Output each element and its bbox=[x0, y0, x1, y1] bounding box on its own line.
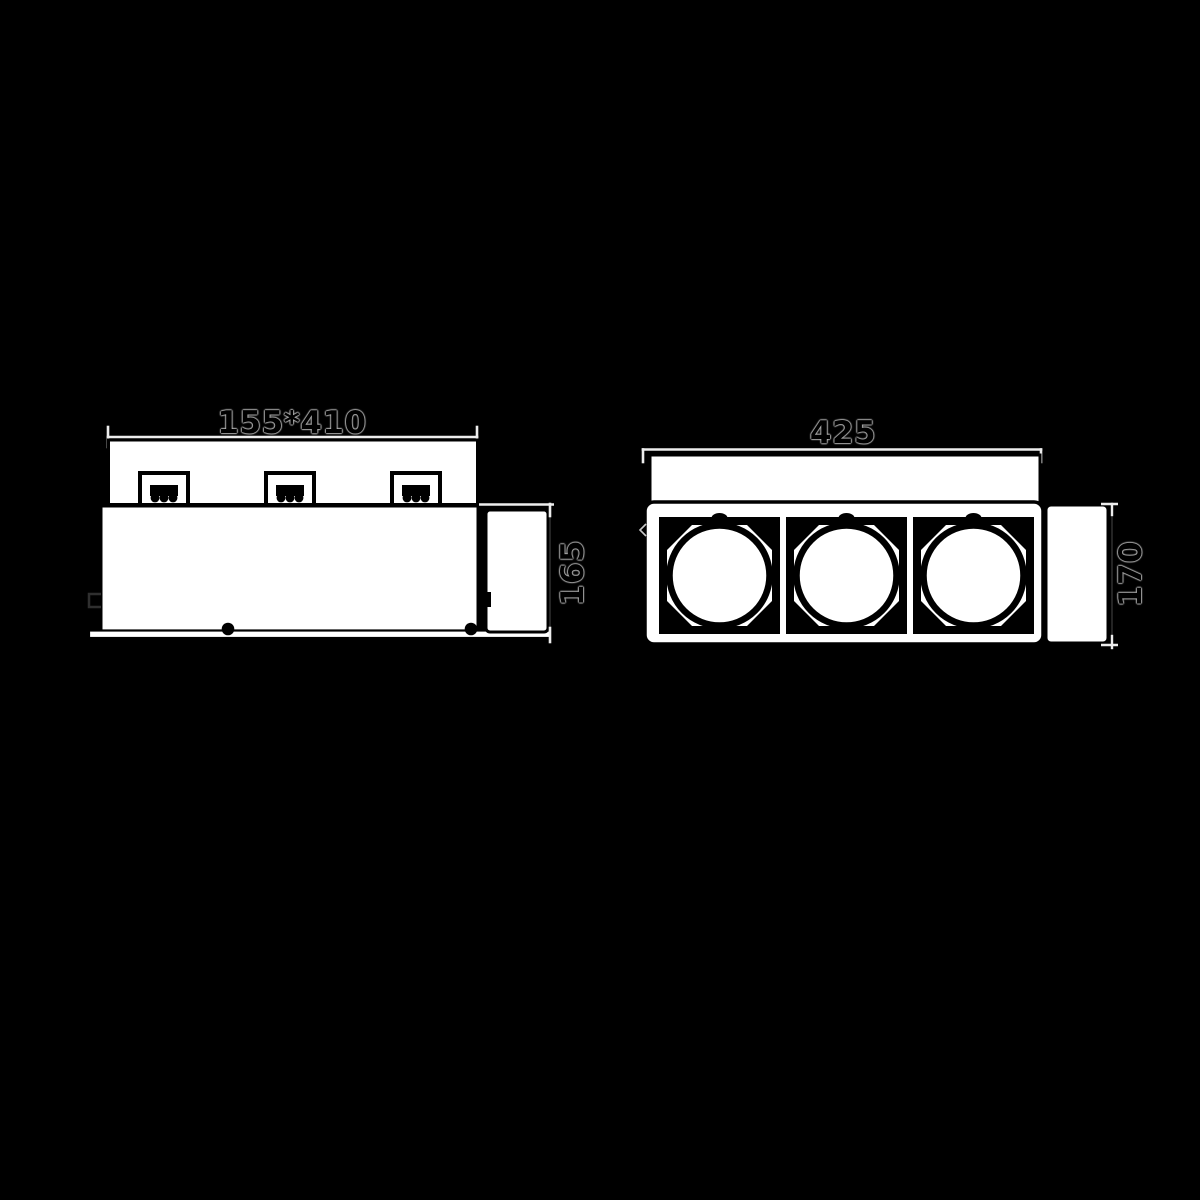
pivot-tab bbox=[712, 513, 728, 523]
side-view bbox=[89, 427, 554, 642]
fixture-body bbox=[101, 506, 478, 631]
trim-lip bbox=[89, 631, 551, 639]
dim-label-side-height: 165 bbox=[555, 540, 591, 606]
lamp-ring bbox=[797, 526, 897, 626]
dim-label-front-width: 425 bbox=[810, 415, 876, 451]
terminal-screw bbox=[421, 494, 430, 503]
terminal-screw bbox=[412, 494, 421, 503]
front-view bbox=[640, 450, 1118, 649]
lamp-ring bbox=[670, 526, 770, 626]
terminal-screw bbox=[295, 494, 304, 503]
terminal-block-3 bbox=[392, 473, 440, 505]
terminal-screw bbox=[277, 494, 286, 503]
terminal-block-1 bbox=[140, 473, 188, 505]
trim-detent-left bbox=[222, 623, 235, 636]
housing-strip bbox=[650, 455, 1040, 504]
terminal-screw bbox=[160, 494, 169, 503]
dim-label-side-width: 155*410 bbox=[217, 405, 366, 441]
pivot-tab bbox=[839, 513, 855, 523]
mounting-clip-right bbox=[480, 592, 491, 607]
terminal-block-2 bbox=[266, 473, 314, 505]
terminal-screw bbox=[286, 494, 295, 503]
pivot-tab bbox=[966, 513, 982, 523]
end-profile bbox=[486, 510, 548, 632]
terminal-screw bbox=[403, 494, 412, 503]
technical-drawing-canvas: 155*410 165 425 170 bbox=[0, 0, 1200, 1200]
trim-detent-right bbox=[465, 623, 478, 636]
lamp-ring bbox=[924, 526, 1024, 626]
mounting-clip-left bbox=[89, 594, 101, 607]
end-profile bbox=[1046, 505, 1108, 643]
terminal-screw bbox=[169, 494, 178, 503]
terminal-screw bbox=[151, 494, 160, 503]
dim-label-front-height: 170 bbox=[1113, 541, 1149, 607]
drawing-svg bbox=[0, 0, 1200, 1200]
